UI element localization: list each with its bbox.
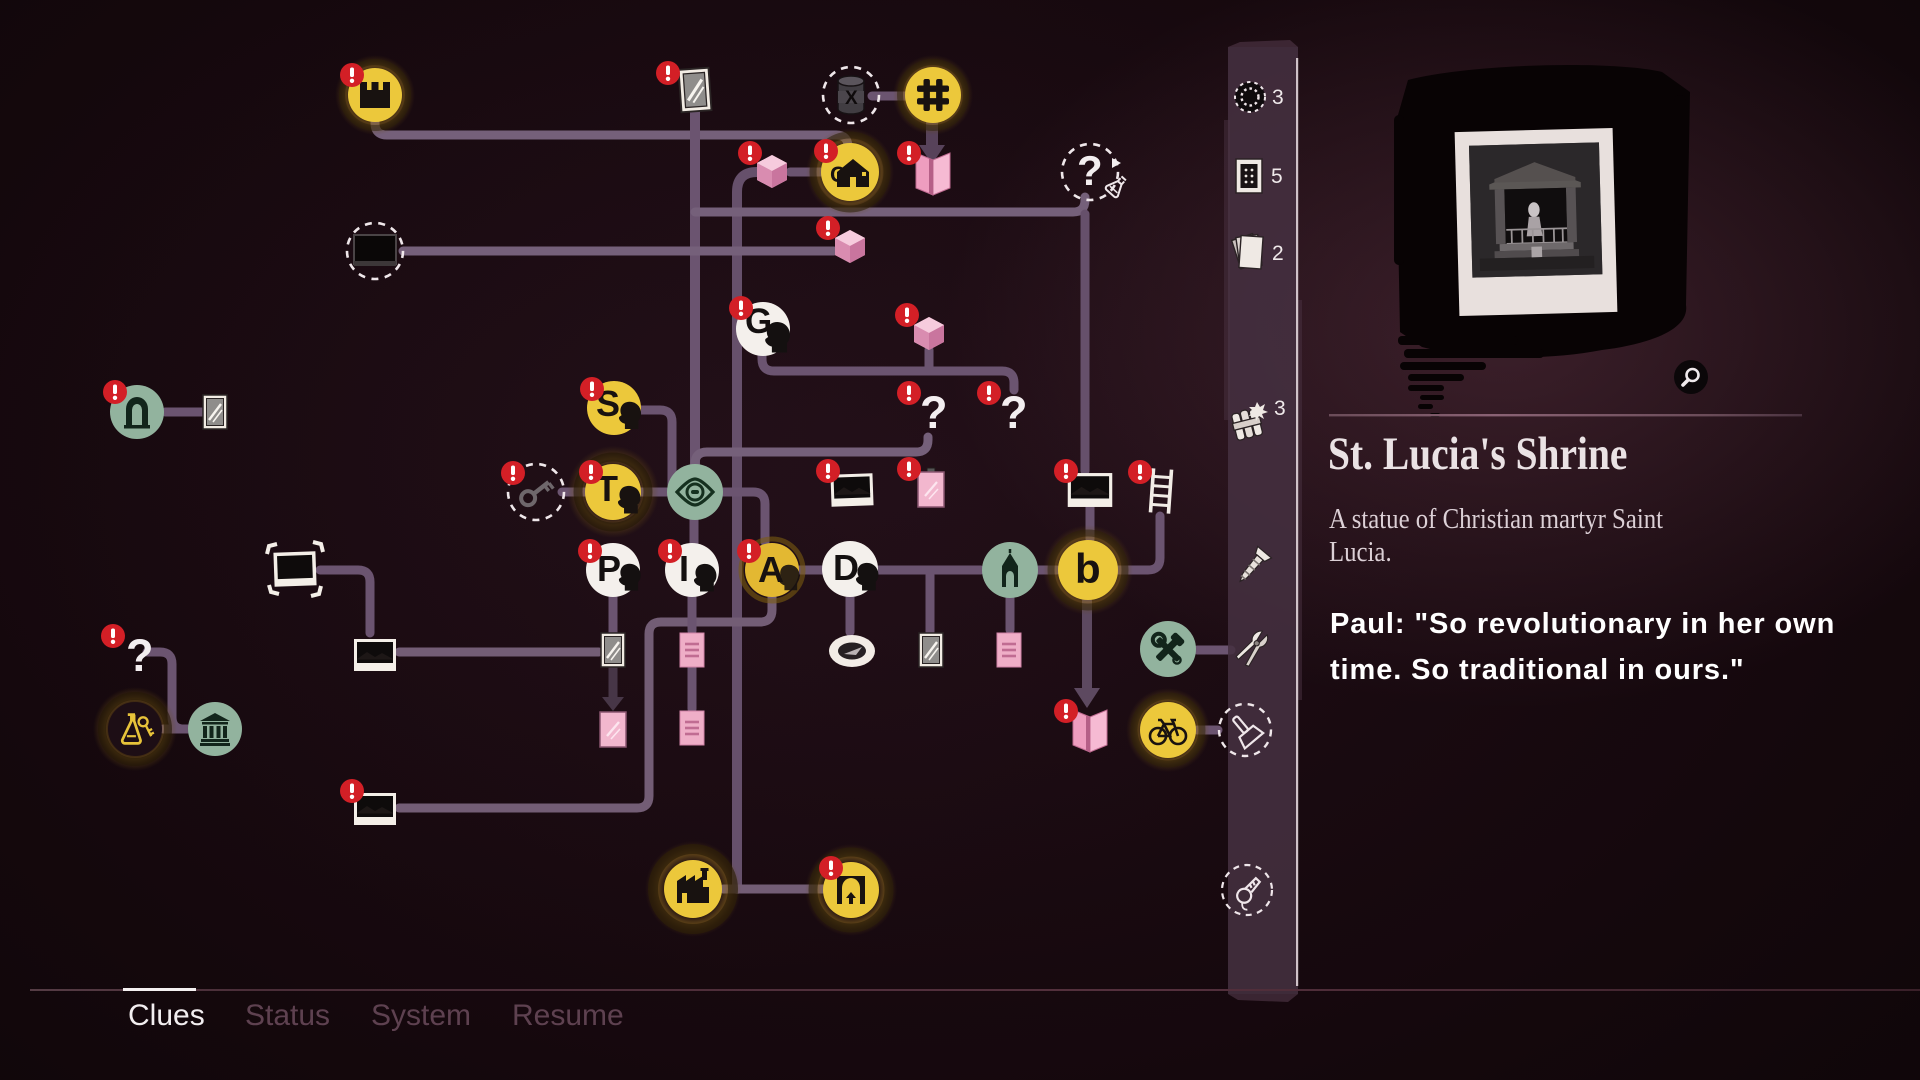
svg-text:5: 5	[1271, 165, 1283, 188]
svg-text:3: 3	[1272, 86, 1284, 109]
svg-text:?: ?	[126, 630, 154, 681]
svg-text:?: ?	[1077, 147, 1103, 194]
svg-text:b: b	[1075, 545, 1101, 592]
svg-text:?: ?	[1000, 387, 1028, 438]
svg-text:A: A	[758, 549, 784, 590]
svg-text:3: 3	[1274, 397, 1286, 420]
svg-text:D: D	[833, 547, 859, 588]
svg-text:2: 2	[1272, 242, 1284, 265]
svg-text:X: X	[845, 88, 858, 109]
svg-text:?: ?	[920, 387, 948, 438]
